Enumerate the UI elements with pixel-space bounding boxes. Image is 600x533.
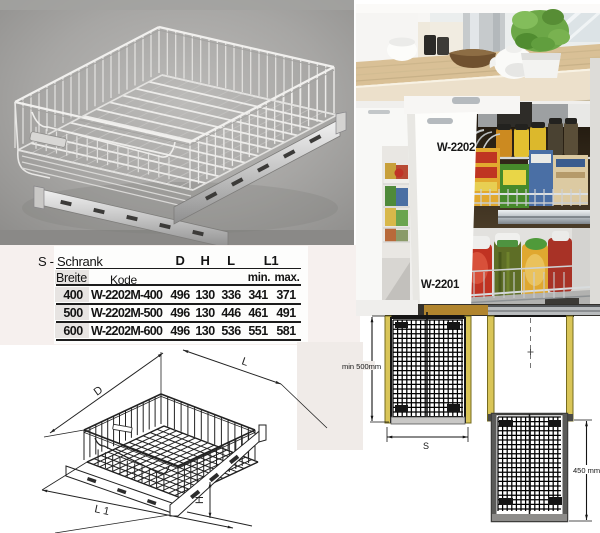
svg-text:450 mm: 450 mm bbox=[573, 466, 600, 475]
svg-text:L 1: L 1 bbox=[93, 503, 110, 518]
svg-text:H: H bbox=[194, 496, 206, 504]
svg-text:W-2201: W-2201 bbox=[421, 279, 460, 291]
svg-text:S: S bbox=[423, 441, 429, 451]
svg-text:W-2202: W-2202 bbox=[437, 142, 475, 154]
svg-text:L: L bbox=[240, 355, 250, 368]
svg-text:D: D bbox=[92, 384, 106, 398]
svg-text:min 500mm: min 500mm bbox=[342, 362, 381, 371]
